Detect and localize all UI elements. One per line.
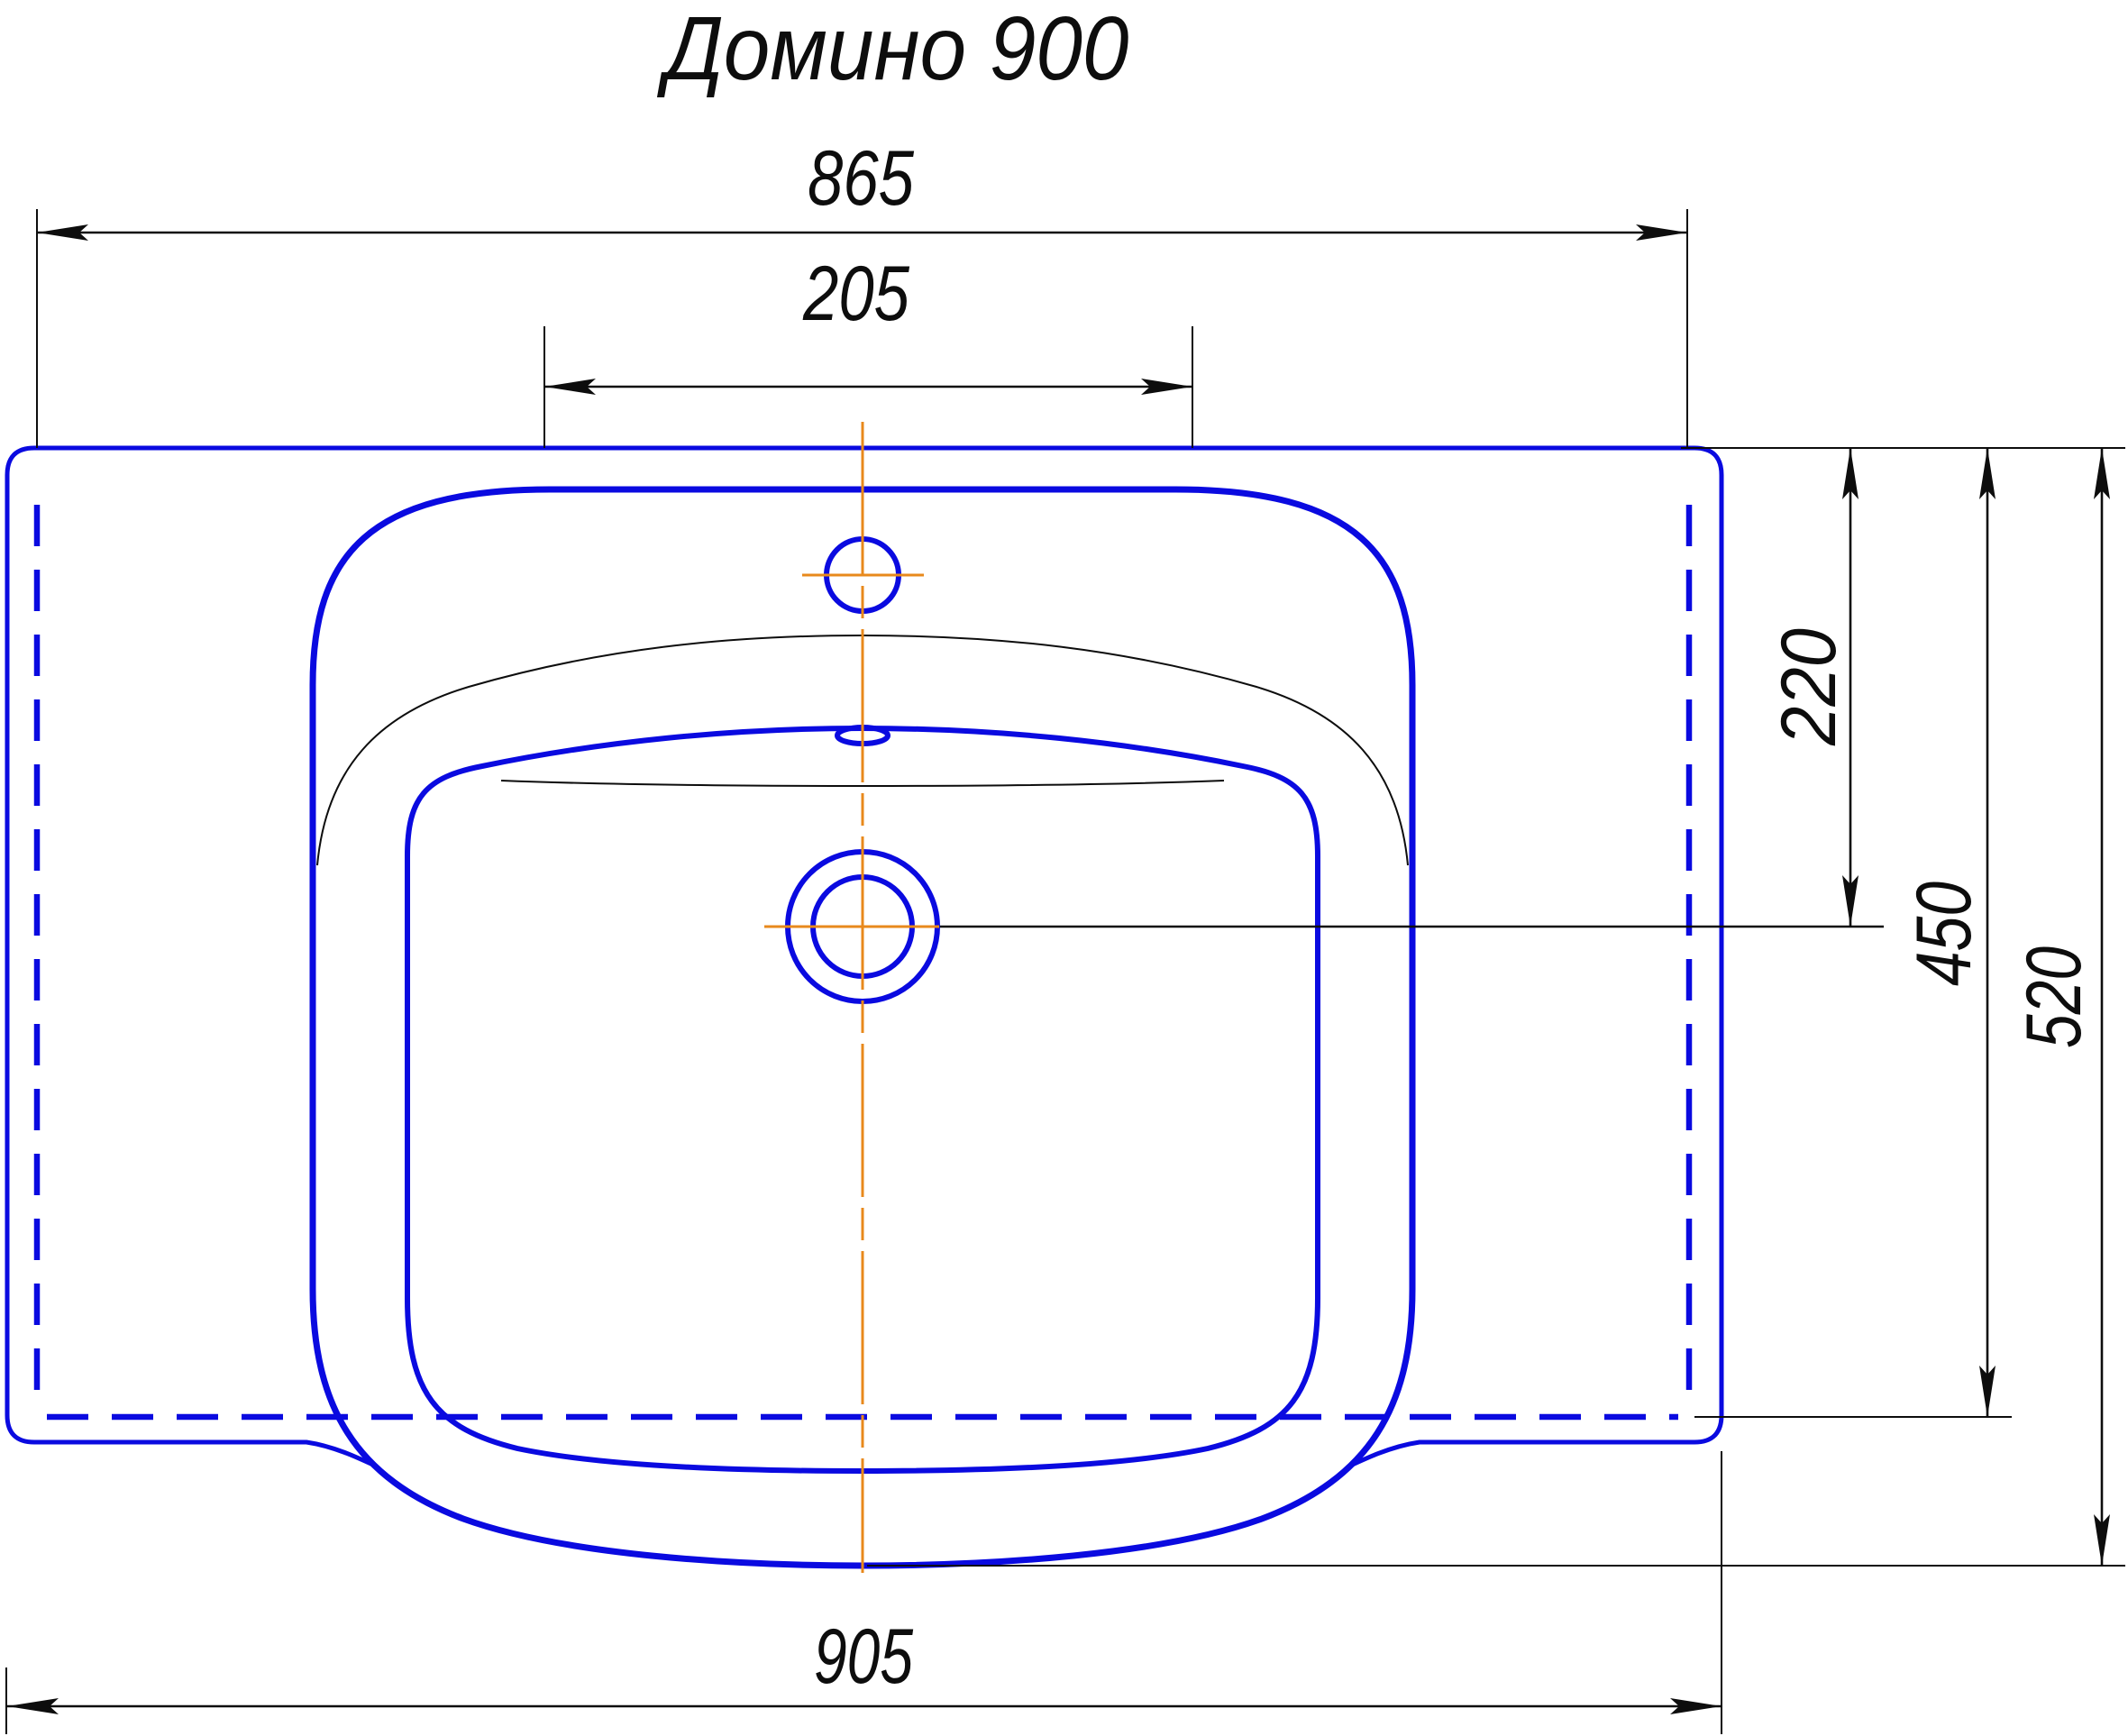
dim-450-label: 450: [1901, 882, 1987, 986]
drawing-sheet: Домино 900 865 205 220 450 520 905: [0, 0, 2128, 1736]
dim-205-label: 205: [802, 251, 910, 337]
dim-905-label: 905: [814, 1613, 914, 1700]
dim-865-label: 865: [808, 135, 915, 222]
dim-220-label: 220: [1766, 628, 1852, 746]
washbasin-technical-drawing: Домино 900 865 205 220 450 520 905: [0, 0, 2128, 1736]
dim-520-label: 520: [2011, 946, 2097, 1048]
drawing-title: Домино 900: [656, 0, 1128, 99]
